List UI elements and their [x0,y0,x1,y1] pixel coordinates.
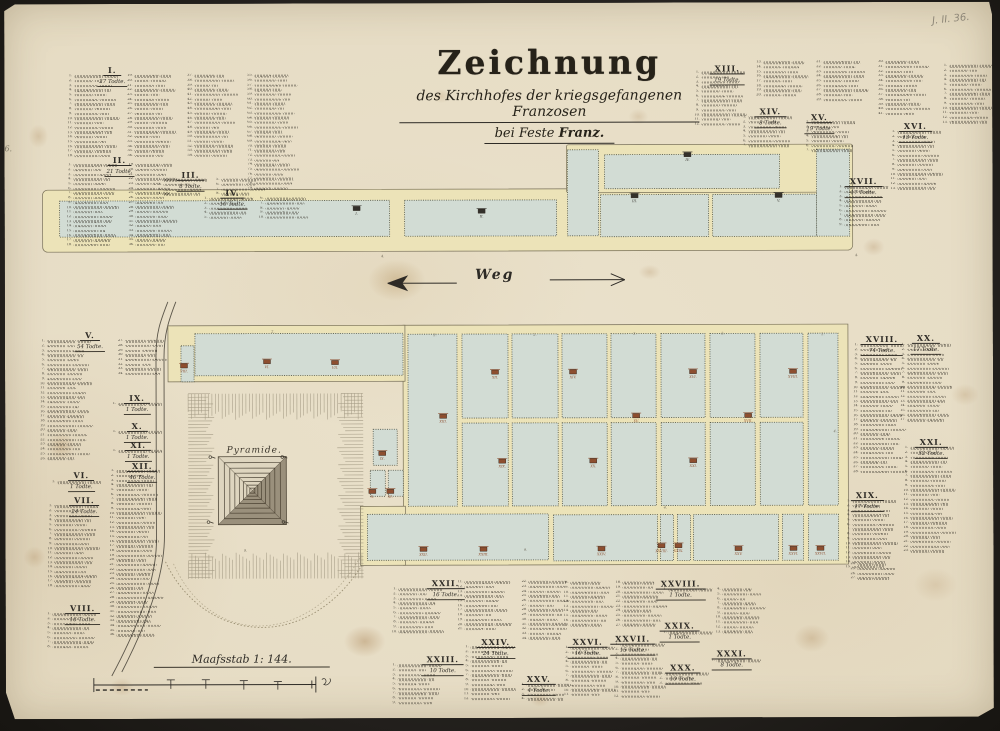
name-row: 9. [391,701,449,706]
surname-script [118,431,147,433]
grave-number: 3. [900,353,905,357]
grave-number: 22. [522,580,527,584]
surname-script [73,178,102,180]
name-column: 1.2.3. [658,671,716,685]
burial-plot [660,515,673,561]
givenname-script [490,591,505,593]
givenname-script [147,554,163,556]
grave-number: 27. [110,591,115,595]
surname-script [570,666,589,668]
grave-number: 23. [616,604,621,608]
grave-marker [790,546,797,550]
givenname-script [419,607,431,609]
givenname-script [937,400,945,402]
givenname-script [80,557,94,559]
grave-number: 4. [157,192,162,196]
surname-script [398,616,427,618]
surname-script [722,626,737,628]
surname-script [74,75,103,77]
givenname-script [67,373,83,375]
burial-plot [611,334,656,418]
givenname-script [194,179,208,181]
givenname-script [880,447,894,449]
grave-number: 12. [458,585,463,589]
surname-script [135,211,150,213]
grave-number: 9. [903,484,908,488]
surname-script [74,80,93,82]
surname-script [570,694,589,696]
grave-number: 9. [109,507,114,511]
surname-script [209,207,233,209]
grave-number: 31. [118,358,123,362]
givenname-script [142,522,156,524]
grave-number: 67. [247,130,252,134]
grave-number: 12. [48,556,53,560]
givenname-script [496,698,510,700]
grave-number: 11. [40,386,45,390]
givenname-script [651,686,666,688]
givenname-script [792,89,801,91]
givenname-script [937,358,944,360]
grave-number: 18. [616,581,621,585]
givenname-script [230,203,238,205]
grave-number: 23. [40,443,45,447]
surname-script [125,345,151,347]
givenname-script [94,169,102,171]
grave-marker-numeral: III. [631,199,637,203]
givenname-script [157,244,165,246]
givenname-script [496,655,509,657]
givenname-script [147,540,159,542]
surname-script [134,94,149,96]
grave-number: 16. [109,540,114,544]
surname-script [852,510,876,512]
grave-number: 70. [247,144,252,148]
givenname-script [429,630,444,632]
surname-script [860,452,884,454]
name-column: 13.14.15.16.17.18.19.20. [756,60,814,98]
givenname-script [979,93,990,95]
grave-number: 12. [900,395,905,399]
surname-script [528,628,554,630]
name-column: 1.2.3.4.5.6.7. [741,115,799,148]
givenname-script [221,80,234,82]
surname-script [910,475,939,477]
givenname-script [928,131,942,133]
surname-script [852,524,876,526]
surname-script [134,145,159,147]
givenname-script [556,628,567,630]
grave-number: 1. [40,340,45,344]
givenname-script [879,568,896,570]
surname-script [620,677,639,679]
surname-script [701,72,730,74]
grave-number: 23. [853,447,858,451]
grave-number: 11. [900,390,905,394]
givenname-script [146,470,160,472]
givenname-script [927,349,935,351]
givenname-script [137,573,151,575]
givenname-script [142,634,155,636]
surname-script [885,70,902,72]
surname-script [722,612,737,614]
surname-script [844,214,873,216]
surname-script [907,358,936,360]
grave-number: 6. [259,197,264,201]
grave-number: 9. [900,381,905,385]
name-row: 17. [900,418,958,423]
survey-tick: 2. [432,333,436,337]
givenname-script [157,216,168,218]
grave-number: 3. [942,74,947,78]
grave-number: 1. [47,505,52,509]
surname-script [897,145,926,147]
givenname-script [99,85,112,87]
givenname-script [556,614,563,616]
grave-number: 44. [187,107,192,111]
grave-number: 3. [741,125,746,129]
givenname-script [936,513,943,515]
surname-script [47,382,76,384]
surname-script [125,359,151,361]
grave-number: 19. [756,89,761,93]
givenname-script [147,340,164,342]
surname-script [885,61,907,63]
surname-script [622,596,640,598]
grave-number: 2. [464,650,469,654]
grave-number: 9. [391,701,396,705]
grave-number: 74. [247,163,252,167]
surname-script [118,403,147,405]
givenname-script [928,145,935,147]
givenname-script [883,500,897,502]
grave-number: 6. [845,523,850,527]
givenname-script [235,207,248,209]
givenname-script [278,122,289,124]
givenname-script [884,572,895,574]
grave-number: 10. [845,542,850,546]
surname-script [73,183,92,185]
grave-number: 3. [391,673,396,677]
surname-script [194,150,220,152]
givenname-script [152,169,168,171]
grave-number: 13. [67,131,72,135]
givenname-script [600,605,614,607]
grave-number: 24. [616,609,621,613]
grave-number: 4. [838,200,843,204]
givenname-script [739,626,754,628]
grave-number: 8. [40,372,45,376]
surname-script [74,150,93,152]
surname-script [54,538,73,540]
grave-number: 3. [838,195,843,199]
name-row: 17. [564,623,622,628]
grave-number: 12. [464,697,469,701]
grave-number: 14. [67,135,72,139]
givenname-script [161,131,177,133]
grave-number: 2. [564,651,569,655]
grave-number: 28. [118,344,123,348]
name-column: 1.2.3.4.5.6.7.8.9.10.11.12. [464,645,522,701]
surname-script [134,150,149,152]
grave-number: 4. [47,519,52,523]
surname-script [860,358,889,360]
grave-number: 20. [128,168,133,172]
grave-number: 2. [392,592,397,596]
surname-script [570,582,588,584]
grave-number: 25. [129,191,134,195]
surname-script [265,207,284,209]
surname-script [528,581,549,583]
grave-number: 15. [109,535,114,539]
name-row: 7. [741,143,799,148]
burial-plot [601,194,709,236]
givenname-script [99,244,110,246]
surname-script [668,589,697,591]
grave-number: 14. [853,404,858,408]
givenname-script [904,113,915,115]
givenname-script [273,103,286,105]
grave-number: 36. [129,243,134,247]
surname-script [54,561,83,563]
grave-number: 34. [129,234,134,238]
grave-number: 1. [46,613,51,617]
grave-number: 6. [694,94,699,98]
givenname-script [885,438,900,440]
givenname-script [94,94,106,96]
surname-script [949,74,973,76]
givenname-script [918,150,930,152]
grave-number: 3. [46,622,51,626]
givenname-script [641,691,650,693]
surname-script [885,108,912,110]
surname-script [194,117,215,119]
surname-script [209,212,238,214]
surname-script [910,531,939,533]
grave-number: 14. [756,65,761,69]
surname-script [47,439,76,441]
surname-script [52,618,71,620]
grave-number: 16. [756,75,761,79]
survey-tick: 2. [270,330,274,334]
surname-script [47,378,71,380]
grave-number: 34. [878,79,883,83]
surname-script [116,484,145,486]
surname-script [54,547,83,549]
givenname-script [774,140,791,142]
grave-number: 12. [716,625,721,629]
surname-script [949,116,973,118]
givenname-script [147,611,157,613]
givenname-script [137,601,148,603]
givenname-script [418,669,426,671]
surname-script [860,349,879,351]
grave-marker-numeral: XI. [387,495,393,499]
grave-number: 22. [40,438,45,442]
givenname-script [137,559,147,561]
givenname-script [941,517,953,519]
grave-number: 30. [878,60,883,64]
grave-number: 1. [464,645,469,649]
surname-script [73,234,102,236]
givenname-script [85,533,96,535]
givenname-script [979,65,993,67]
grave-number: 33. [118,367,123,371]
grave-marker [369,489,376,493]
grave-number: 59. [247,93,252,97]
surname-script [116,508,140,510]
givenname-script [547,689,555,691]
grave-number: 11. [716,621,721,625]
surname-script [116,564,140,566]
surname-script [52,641,81,643]
burial-plot [611,423,656,506]
surname-script [910,508,929,510]
grave-number: 5. [845,518,850,522]
grave-number: 17. [900,418,905,422]
grave-number: 9. [853,381,858,385]
grave-number: 14. [48,565,53,569]
grave-number: 69. [247,140,252,144]
surname-script [570,601,593,603]
grave-number: 4. [67,89,72,93]
givenname-script [931,508,944,510]
grave-number: 41. [878,112,883,116]
givenname-script [744,603,756,605]
givenname-script [104,178,111,180]
name-row: 34. [118,372,176,377]
grave-number: 4. [900,357,905,361]
givenname-script [423,674,436,676]
surname-script [701,76,720,78]
grave-number: 1. [111,430,116,434]
grave-number: 10. [853,386,858,390]
givenname-script [935,470,952,472]
burial-plot [710,333,755,417]
grave-number: 2. [741,120,746,124]
givenname-script [931,480,947,482]
grave-number: 5. [67,93,72,97]
grave-number: 39. [878,103,883,107]
surname-script [464,605,488,607]
givenname-script [137,587,144,589]
grave-number: 23. [110,572,115,576]
name-row: 5. [203,215,261,220]
surname-script [47,345,66,347]
givenname-script [283,126,299,128]
givenname-script [142,550,153,552]
grave-number: 43. [187,102,192,106]
surname-script [134,155,154,157]
givenname-script [651,644,665,646]
grave-number: 12. [853,395,858,399]
grave-marker-numeral: XII. [491,376,498,380]
grave-number: 3. [694,80,699,84]
givenname-script [591,694,600,696]
grave-number: 7. [804,149,809,153]
road-label: Weg [457,267,533,283]
surname-script [47,457,66,459]
givenname-script [739,598,746,600]
surname-script [135,164,160,166]
surname-script [860,428,889,430]
grave-number: 6. [46,636,51,640]
surname-script [194,94,220,96]
givenname-script [151,150,165,152]
grave-number: 10. [564,688,569,692]
grave-number: 20. [458,623,463,627]
givenname-script [291,212,299,214]
burial-plot [367,514,548,560]
name-column: 11.12.13.14.15.16.17.18.19.20.21. [458,580,516,632]
givenname-script [72,420,83,422]
grave-number: 42. [187,98,192,102]
grave-number: 29. [127,121,132,125]
givenname-script [161,145,170,147]
givenname-script [240,179,257,181]
givenname-script [419,621,435,623]
givenname-script [880,391,889,393]
name-row: 1. [662,630,720,635]
surname-script [194,126,210,128]
surname-script [74,127,98,129]
givenname-script [652,605,668,607]
grave-number: 7. [890,158,895,162]
givenname-script [937,386,952,388]
grave-number: 73. [247,158,252,162]
surname-script [47,368,76,370]
grave-number: 9. [890,168,895,172]
givenname-script [222,150,233,152]
surname-script [907,400,936,402]
givenname-script [142,606,158,608]
surname-script [47,420,71,422]
givenname-script [419,593,427,595]
grave-number: 26. [129,196,134,200]
givenname-script [870,210,887,212]
grave-number: 18. [853,423,858,427]
surname-script [910,550,929,552]
surname-script [852,500,881,502]
givenname-script [189,188,202,190]
grave-marker-numeral: VII. [332,366,338,370]
name-column: 1.2.3.4.5.6.7.8. [46,612,104,650]
surname-script [135,234,160,236]
givenname-script [774,126,787,128]
grave-number: 10. [564,591,569,595]
givenname-script [641,648,649,650]
grave-number: 12. [564,600,569,604]
givenname-script [162,234,171,236]
givenname-script [491,651,499,653]
givenname-script [908,61,919,63]
grave-marker-numeral: I. [354,212,357,216]
surname-script [860,405,879,407]
surname-script [910,489,939,491]
givenname-script [727,109,737,111]
surname-script [860,372,889,374]
givenname-script [142,493,159,495]
givenname-script [601,675,612,677]
surname-script [74,85,98,87]
givenname-script [147,354,157,356]
grave-number: 34. [110,624,115,628]
surname-script [73,216,97,218]
grave-list-header: XXXI.8 Todte. [712,643,752,670]
givenname-script [936,499,950,501]
name-column: 30.31.32.33.34.35.36.37.38.39.40.41. [878,60,936,116]
grave-number: 7. [716,602,721,606]
